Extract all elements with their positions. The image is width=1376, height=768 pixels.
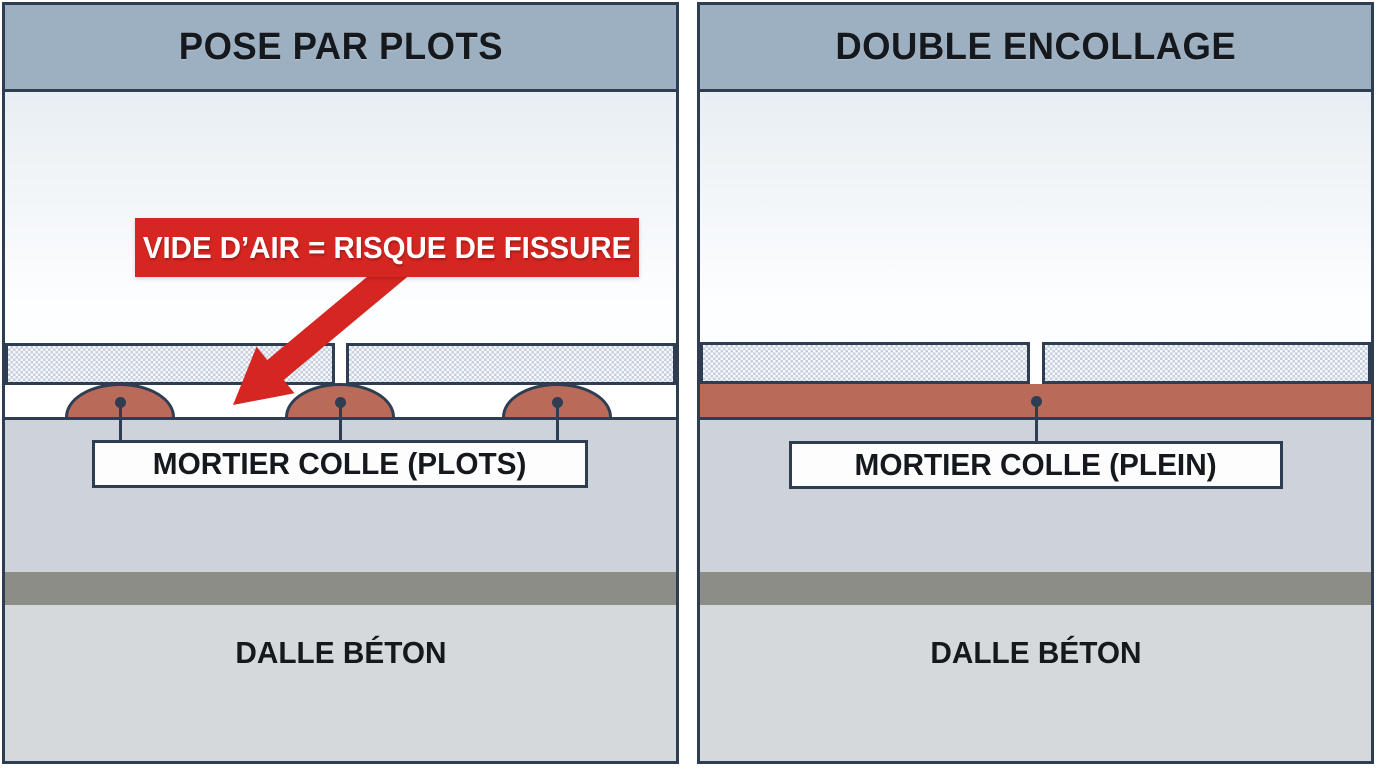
tile-installation-comparison-diagram: POSE PAR PLOTS MORTIER COLLE (PLOTS) VID… <box>0 0 1376 768</box>
tile-icon <box>700 342 1030 384</box>
air-void-warning-banner: VIDE D’AIR = RISQUE DE FISSURE <box>135 218 639 277</box>
right-panel-title: DOUBLE ENCOLLAGE <box>835 26 1236 69</box>
panel-pose-par-plots: POSE PAR PLOTS MORTIER COLLE (PLOTS) VID… <box>2 2 679 764</box>
right-slab-label: DALLE BÉTON <box>700 635 1371 671</box>
right-panel-header: DOUBLE ENCOLLAGE <box>700 5 1371 92</box>
left-slab-label-text: DALLE BÉTON <box>235 635 446 671</box>
left-panel-header: POSE PAR PLOTS <box>5 5 676 92</box>
left-concrete-slab <box>5 605 676 761</box>
right-separator-band <box>700 572 1371 605</box>
left-mortar-label: MORTIER COLLE (PLOTS) <box>153 446 527 482</box>
callout-dot-icon <box>1031 396 1042 407</box>
leader-line <box>119 405 122 440</box>
leader-line <box>556 405 559 440</box>
callout-dot-icon <box>552 397 563 408</box>
callout-dot-icon <box>115 397 126 408</box>
tile-icon <box>5 343 335 385</box>
right-air-zone <box>700 92 1371 342</box>
left-separator-band <box>5 572 676 605</box>
left-mortar-label-box: MORTIER COLLE (PLOTS) <box>92 440 588 488</box>
left-panel-title: POSE PAR PLOTS <box>178 26 502 69</box>
right-mortar-label-box: MORTIER COLLE (PLEIN) <box>789 441 1283 489</box>
right-slab-label-text: DALLE BÉTON <box>930 635 1141 671</box>
right-concrete-slab <box>700 605 1371 761</box>
air-void-warning-text: VIDE D’AIR = RISQUE DE FISSURE <box>143 230 631 266</box>
leader-line <box>1035 404 1038 441</box>
left-slab-label: DALLE BÉTON <box>5 635 676 671</box>
leader-line <box>339 405 342 440</box>
callout-dot-icon <box>335 397 346 408</box>
tile-icon <box>346 343 676 385</box>
tile-icon <box>1042 342 1371 384</box>
right-mortar-label: MORTIER COLLE (PLEIN) <box>855 447 1217 483</box>
panel-double-encollage: DOUBLE ENCOLLAGE MORTIER COLLE (PLEIN) D… <box>697 2 1374 764</box>
